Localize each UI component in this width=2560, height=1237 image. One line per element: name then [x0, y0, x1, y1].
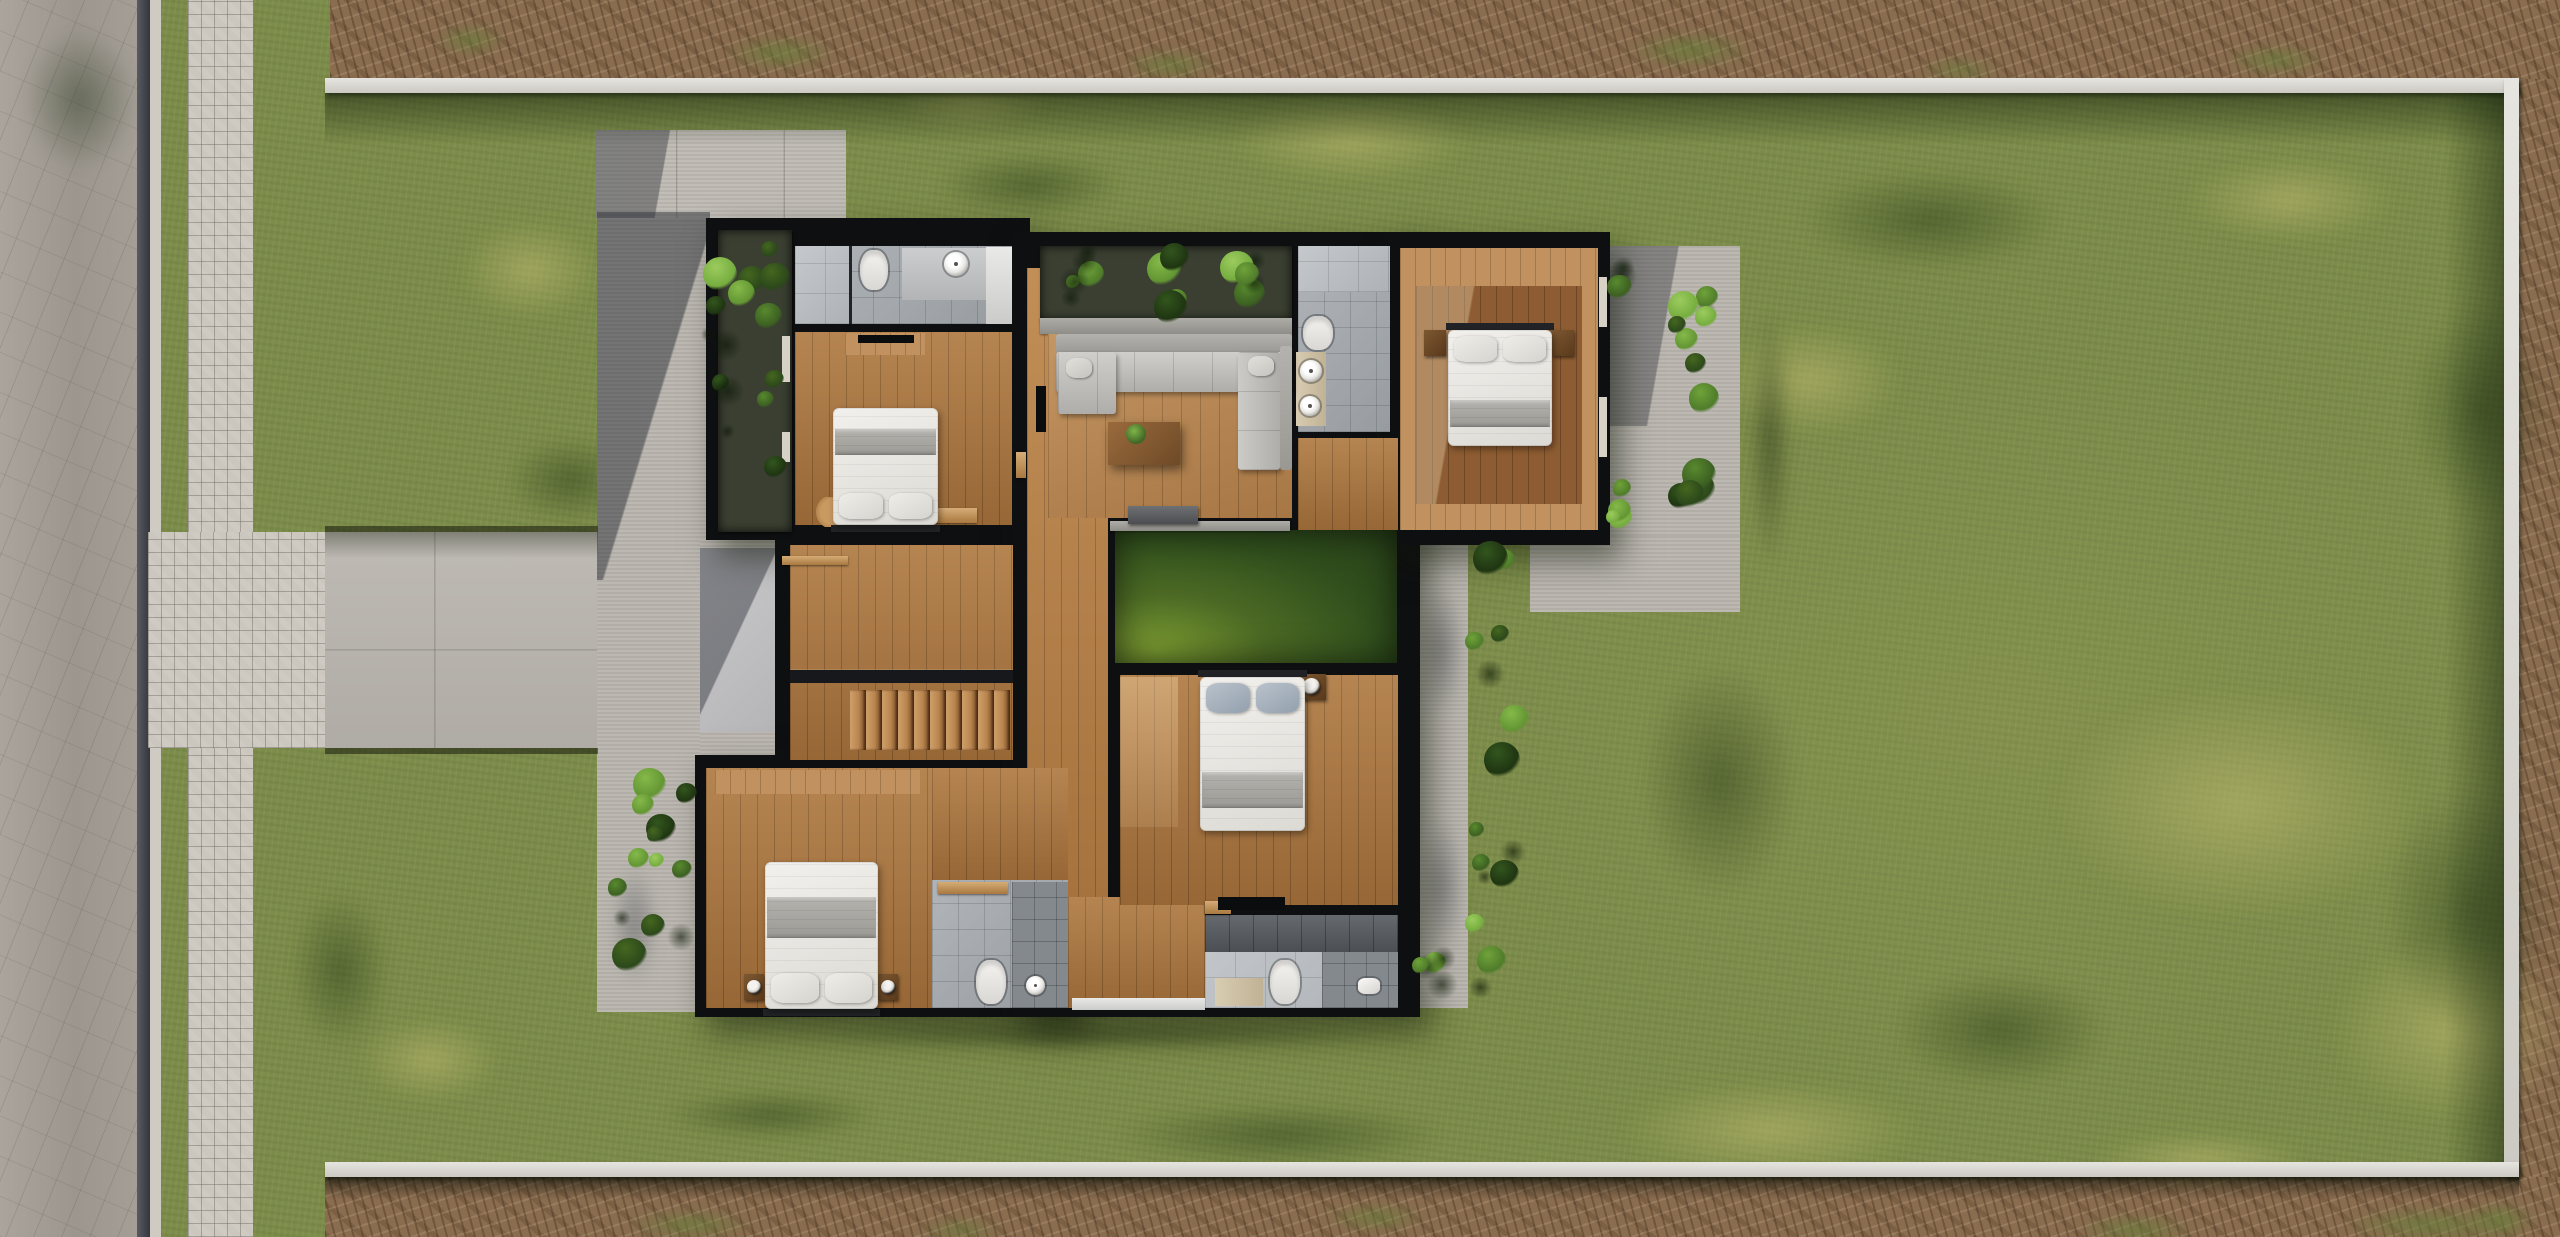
sofa-back-vertical — [1280, 346, 1292, 470]
sink-bath1 — [944, 252, 968, 276]
door-slit-east1 — [1599, 277, 1607, 327]
planter-walkway-east-leaf-11 — [1465, 914, 1483, 932]
road — [0, 0, 137, 1237]
stair-tread-3 — [882, 690, 898, 750]
planter-walkway-east-leaf-7 — [1469, 822, 1484, 837]
bed-bedroom1-blanket — [835, 429, 936, 455]
stair-tread-7 — [946, 690, 962, 750]
plant-terrace-nw-leaf-2 — [1607, 275, 1632, 300]
planter-atrium-leaf-13 — [1160, 243, 1189, 272]
bush-southeast-shade-4 — [1426, 969, 1457, 1000]
stair-tread-9 — [978, 690, 994, 750]
bedroom1-door-east — [1016, 452, 1026, 478]
planter-west-shade-12 — [720, 424, 735, 439]
tv-living — [1036, 386, 1046, 432]
bedroom4-sunlight — [1120, 677, 1178, 827]
planter-walkway-east-leaf-8 — [1500, 705, 1529, 734]
hall3-floor — [932, 768, 1068, 880]
bath3-door — [938, 882, 1008, 894]
bed-bedroom3-pillow-left — [771, 973, 819, 1003]
stair-tread-1 — [850, 690, 866, 750]
planter-walkway-east-leaf-5 — [1491, 625, 1509, 643]
wall-right-shadow — [2444, 93, 2504, 1162]
toilet-bath3 — [976, 960, 1006, 1004]
aerial-site-plan-render — [0, 0, 2560, 1237]
planter-west-leaf-11 — [755, 303, 781, 329]
nightstand-bed2-a — [1424, 330, 1446, 356]
bath1-glass-partition — [849, 246, 852, 324]
driveway-concrete — [325, 532, 598, 748]
planter-walkway-east-leaf-9 — [1477, 946, 1506, 975]
stair-tread-4 — [898, 690, 914, 750]
vestibule-threshold — [1072, 998, 1205, 1010]
planter-walkway-east-shade-12 — [1475, 659, 1505, 689]
pot-bed3-a — [747, 980, 761, 994]
tv-bedroom1 — [858, 335, 914, 343]
bed-bedroom1-headboard — [831, 525, 940, 532]
planter-walkway-east-leaf-13 — [1484, 742, 1520, 778]
hall2-floor — [1298, 438, 1398, 530]
planter-entry-leaf-7 — [641, 914, 665, 938]
toilet-bath1 — [860, 250, 888, 290]
bed-bedroom4-headboard — [1198, 670, 1307, 677]
wall-bottom-outer-shadow — [325, 1177, 2519, 1199]
paver-driveway — [148, 532, 325, 748]
lawn-edge-bottom — [325, 748, 598, 754]
stair-railing — [790, 670, 1013, 683]
stair-tread-6 — [930, 690, 946, 750]
planter-atrium-shade-14 — [1059, 266, 1089, 296]
bath1-shower — [795, 246, 851, 324]
courtyard-grass — [1115, 530, 1397, 663]
sink-bath3 — [1026, 976, 1045, 995]
pad-shadow — [596, 130, 714, 218]
planter-west-leaf-13 — [703, 257, 737, 291]
boundary-wall-bottom — [325, 1162, 2519, 1177]
sofa-back — [1056, 334, 1292, 354]
bath1-counter — [902, 248, 986, 300]
bed-bedroom4-pillow-right — [1256, 683, 1300, 713]
patio-shadow — [597, 212, 710, 580]
pot-bed4 — [1303, 678, 1320, 695]
bed-bedroom1-pillow-left — [839, 493, 883, 519]
bath2-shower — [1298, 246, 1390, 292]
planter-walkway-east-leaf-14 — [1472, 854, 1490, 872]
bath4-vanity — [1215, 978, 1263, 1006]
planter-west-leaf-15 — [765, 370, 784, 389]
boundary-wall-right — [2504, 78, 2519, 1177]
planter-walkway-east-leaf-4 — [1490, 860, 1519, 889]
planter-entry-leaf-12 — [632, 794, 654, 816]
planter-west-leaf-0 — [706, 296, 726, 316]
nightstand-bed2-b — [1552, 330, 1574, 356]
planter-west-shade-6 — [701, 327, 715, 341]
planter-walkway-east-leaf-2 — [1473, 541, 1507, 575]
sofa-cushion-1 — [1066, 358, 1092, 378]
sink-bath4 — [1358, 978, 1380, 994]
bath4-wall-tile — [1205, 915, 1398, 952]
planter-west-leaf-14 — [761, 241, 778, 258]
sink-bath2-b — [1300, 396, 1320, 416]
bed-bedroom4-blanket — [1202, 772, 1303, 807]
bed-bedroom3-pillow-right — [825, 973, 873, 1003]
sink-bath2-a — [1300, 360, 1322, 382]
terrace-east-lower — [1530, 536, 1740, 612]
vestibule-floor — [1068, 897, 1205, 1008]
toilet-bath2 — [1303, 316, 1333, 350]
planter-west-leaf-9 — [764, 456, 786, 478]
boundary-wall-top — [325, 78, 2519, 93]
planter-west-leaf-8 — [760, 263, 789, 292]
stair-tread-10 — [994, 690, 1010, 750]
bath1-column — [986, 247, 1012, 324]
driveway-shadow — [325, 532, 598, 558]
hall-console — [1128, 506, 1198, 524]
window-slit-west2 — [782, 432, 790, 462]
bedroom3-wardrobe — [715, 770, 920, 794]
planter-entry-leaf-4 — [612, 938, 647, 973]
planter-west-shade-7 — [713, 375, 745, 407]
porch-shadow — [700, 548, 785, 732]
sofa-cushion-2 — [1248, 356, 1274, 376]
bed-bedroom4-pillow-left — [1206, 683, 1250, 713]
stair-tread-2 — [866, 690, 882, 750]
planter-entry-leaf-0 — [676, 783, 697, 804]
stair-door — [782, 556, 848, 565]
planter-west-shade-2 — [711, 329, 743, 361]
dirt-strip-top — [330, 0, 2560, 79]
bed-bedroom3-headboard — [763, 1009, 880, 1016]
plant-coffee-table — [1126, 424, 1146, 444]
stair-tread-5 — [914, 690, 930, 750]
bedroom4-console — [1218, 897, 1285, 910]
planter-atrium-leaf-15 — [1235, 262, 1260, 287]
planter-entry-leaf-11 — [672, 860, 691, 879]
planter-atrium-leaf-12 — [1154, 290, 1188, 324]
stair-tread-8 — [962, 690, 978, 750]
bed-bedroom2-headboard — [1446, 323, 1554, 330]
bed-bedroom1-pillow-right — [889, 493, 933, 519]
door-slit-east2 — [1599, 397, 1607, 457]
toilet-bath4 — [1270, 960, 1300, 1004]
planter-entry-shade-1 — [667, 923, 695, 951]
bush-southeast-leaf-2 — [1412, 957, 1429, 974]
planter-entry-leaf-6 — [649, 853, 664, 868]
planter-terrace-east-leaf-2 — [1689, 383, 1719, 413]
bed-bedroom2-pillow-left — [1454, 336, 1497, 362]
bed-bedroom3-blanket — [767, 897, 876, 938]
bed-bedroom2-pillow-right — [1503, 336, 1546, 362]
plant-terrace-sw-leaf-1 — [1613, 479, 1631, 497]
dirt-strip-right — [2519, 79, 2560, 1237]
bed-bedroom2-blanket — [1450, 400, 1550, 428]
pot-bed3-b — [881, 980, 895, 994]
planter-entry-leaf-3 — [608, 878, 628, 898]
bedroom1-door — [933, 508, 977, 523]
